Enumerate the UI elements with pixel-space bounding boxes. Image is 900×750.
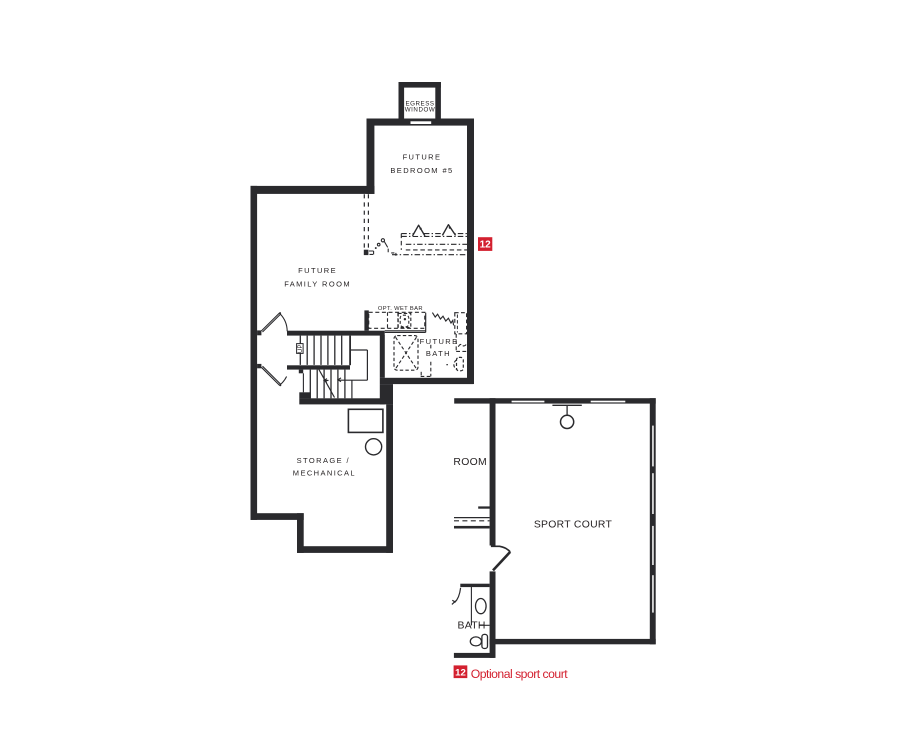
svg-text:FUTURE: FUTURE bbox=[298, 266, 337, 275]
svg-text:BATH: BATH bbox=[426, 349, 451, 358]
svg-text:FAMILY ROOM: FAMILY ROOM bbox=[284, 279, 351, 288]
svg-text:OPT. WET BAR: OPT. WET BAR bbox=[378, 306, 423, 312]
svg-text:ROOM: ROOM bbox=[453, 457, 487, 468]
svg-text:BATH: BATH bbox=[458, 620, 486, 631]
svg-text:SPORT COURT: SPORT COURT bbox=[534, 519, 613, 530]
svg-text:12: 12 bbox=[455, 667, 466, 678]
svg-text:MECHANICAL: MECHANICAL bbox=[293, 469, 356, 478]
svg-text:STORAGE /: STORAGE / bbox=[297, 456, 350, 465]
svg-text:12: 12 bbox=[480, 240, 492, 251]
svg-text:FUTURE: FUTURE bbox=[420, 337, 459, 346]
svg-text:Optional sport court: Optional sport court bbox=[471, 667, 568, 681]
svg-text:UP: UP bbox=[298, 344, 304, 353]
svg-text:FUTURE: FUTURE bbox=[403, 152, 442, 161]
svg-text:WINDOW: WINDOW bbox=[405, 107, 435, 114]
svg-text:BEDROOM #5: BEDROOM #5 bbox=[390, 166, 453, 175]
